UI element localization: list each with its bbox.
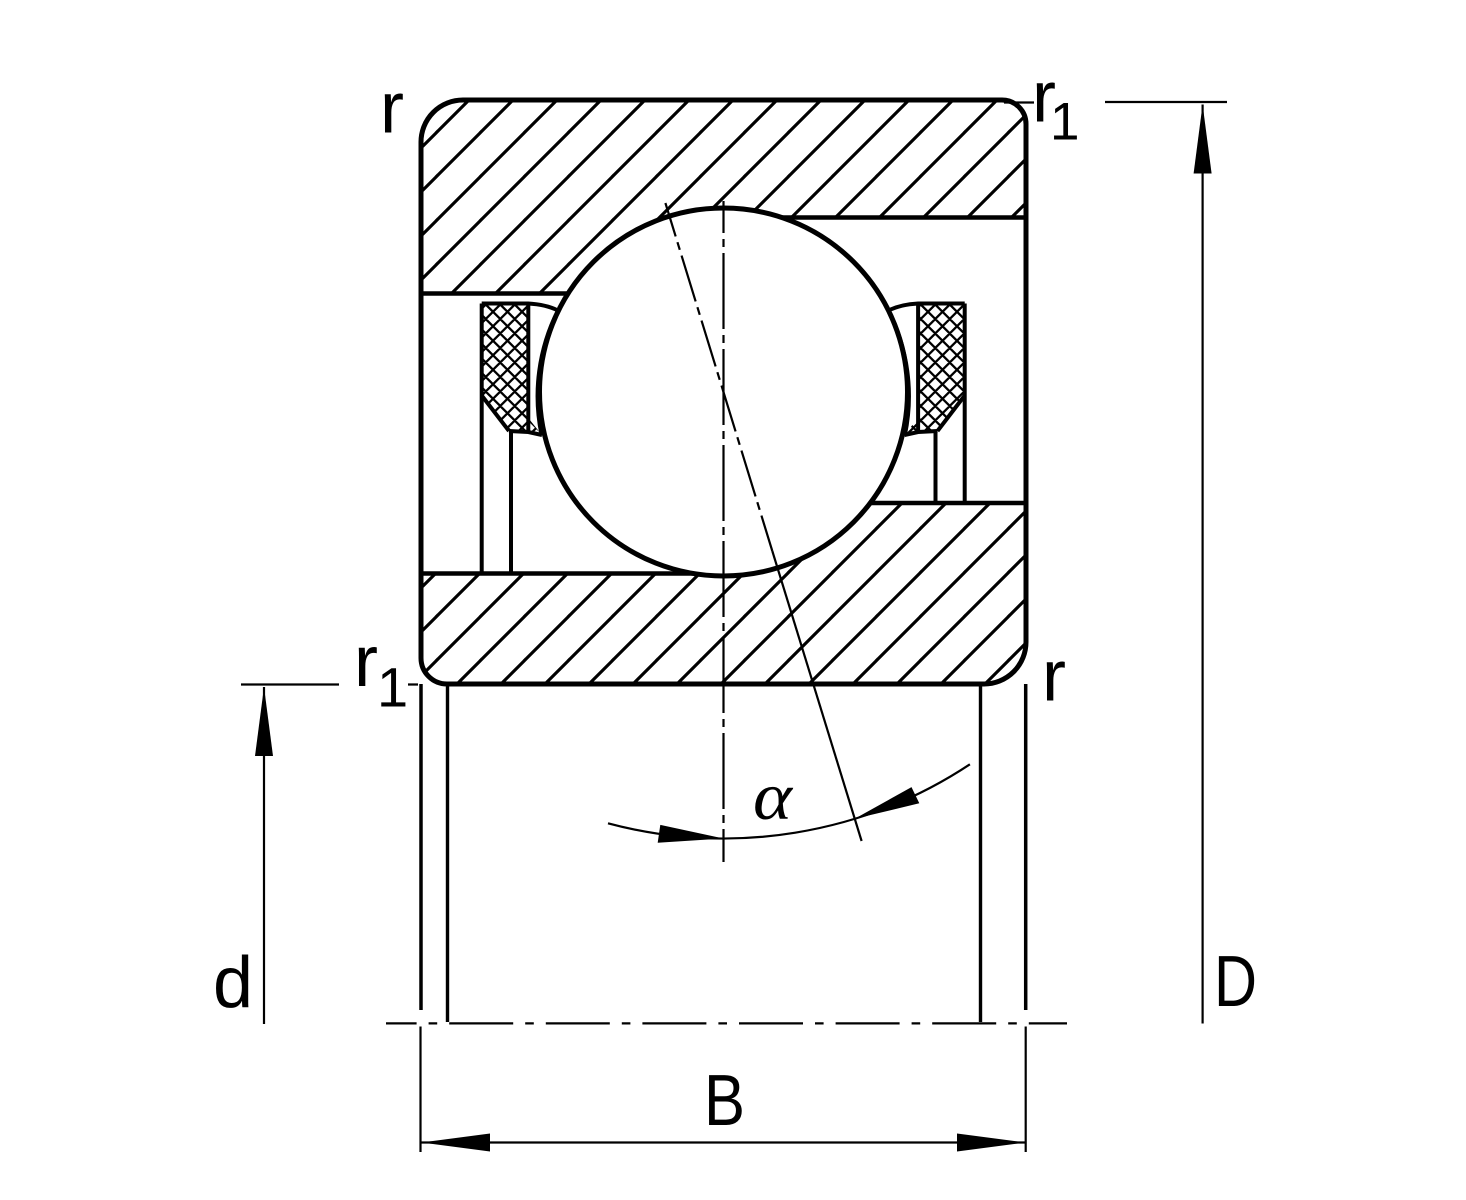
- svg-text:d: d: [213, 943, 253, 1023]
- svg-text:D: D: [1214, 942, 1257, 1022]
- svg-text:r: r: [380, 69, 404, 149]
- svg-text:r: r: [1042, 637, 1066, 717]
- svg-text:1: 1: [1050, 93, 1079, 152]
- svg-text:α: α: [753, 758, 793, 834]
- svg-text:1: 1: [377, 656, 408, 719]
- svg-text:r: r: [354, 622, 378, 702]
- svg-text:B: B: [704, 1061, 745, 1141]
